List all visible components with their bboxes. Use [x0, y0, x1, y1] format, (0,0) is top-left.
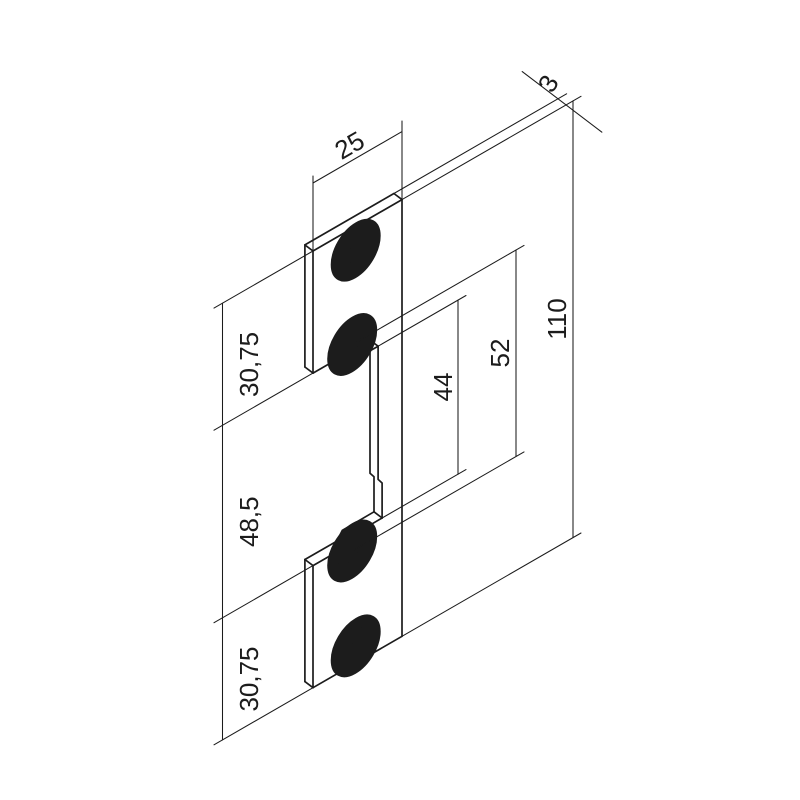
dimension-sections: 30,75 48,5 30,75 [214, 251, 320, 745]
extension-line [378, 296, 466, 347]
dimension-label-top-section: 30,75 [234, 332, 264, 397]
dimension-label-thickness: 3 [532, 70, 565, 98]
bottom-pad-top-left-corner-edge [305, 560, 313, 566]
extension-line [402, 533, 581, 636]
dimension-label-hole-spacing: 52 [485, 339, 515, 368]
cutout-inner-edge-back [370, 340, 374, 512]
dimension-latch-opening: 44 [378, 296, 466, 519]
technical-drawing-canvas: 25 3 110 44 52 30,75 48,5 30,75 [0, 0, 800, 800]
screw-hole-1 [342, 227, 370, 274]
extension-line [402, 96, 581, 199]
dimension-label-middle-section: 48,5 [234, 496, 264, 547]
dimension-label-bottom-section: 30,75 [234, 646, 264, 711]
screw-holes [338, 227, 369, 670]
extension-line [214, 562, 320, 623]
cutout-inner-bottom-corner-edge [374, 512, 382, 518]
extension-line [214, 369, 320, 430]
extension-line [214, 251, 313, 308]
extension-line [352, 245, 524, 344]
dimension-label-width: 25 [329, 125, 369, 165]
dimension-label-height: 110 [542, 298, 572, 339]
extension-line [394, 94, 567, 194]
dimension-plate-thickness: 3 [394, 70, 602, 194]
cutout-inner-edge-front [378, 346, 382, 518]
bottom-pad-bottom-left-corner-edge [305, 682, 313, 688]
drawing-page: 25 3 110 44 52 30,75 48,5 30,75 [0, 0, 800, 800]
extension-line [382, 470, 466, 518]
dimension-label-opening: 44 [428, 373, 458, 402]
top-pad-left-face-bottom-edge [305, 367, 313, 373]
screw-hole-4 [342, 622, 370, 669]
